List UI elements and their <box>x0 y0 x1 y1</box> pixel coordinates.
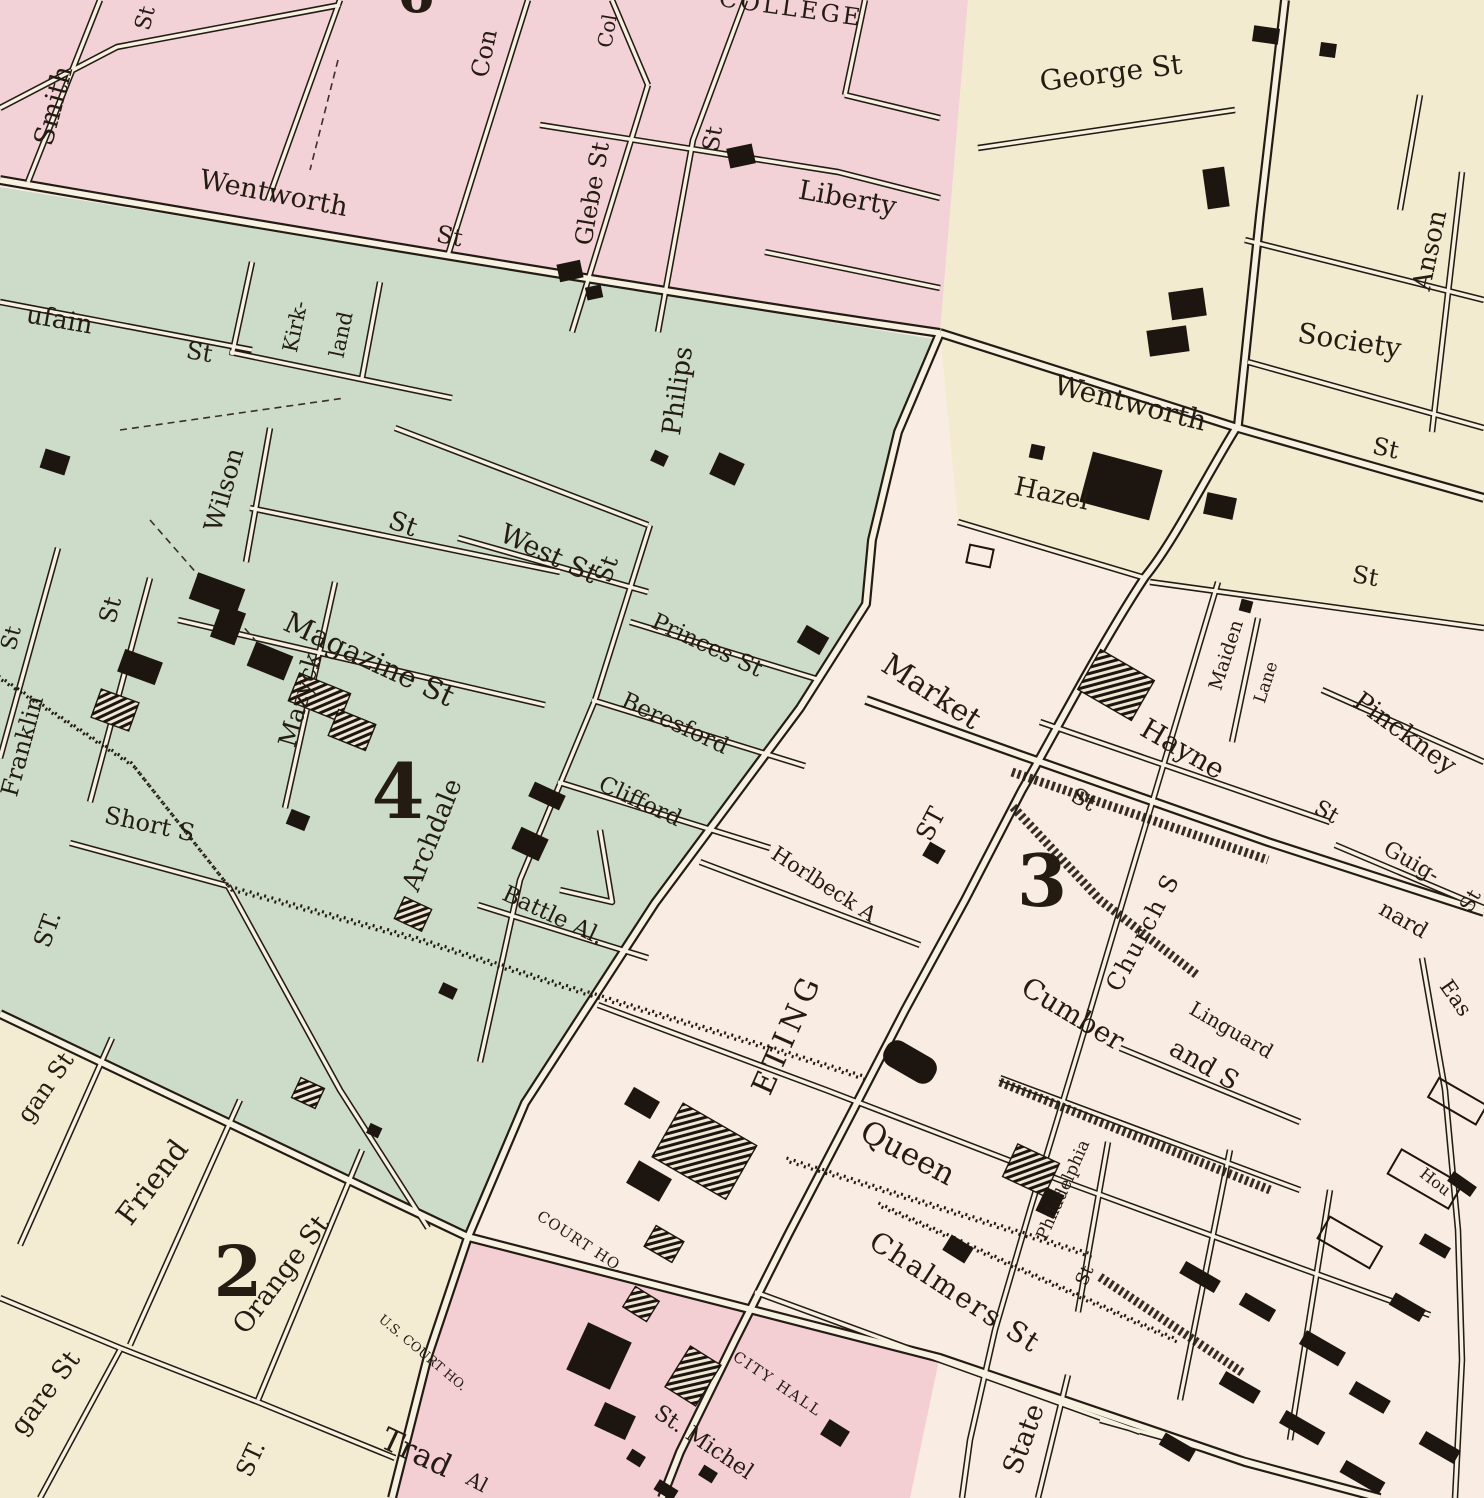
district-number-6: 6 <box>397 0 435 25</box>
building <box>1168 288 1207 321</box>
district-number-3: 3 <box>1017 838 1067 923</box>
historic-city-map[interactable]: St Smith Wentworth St Con Col COLLEGE Gl… <box>0 0 1484 1498</box>
street-label-beaufain-st: St <box>184 336 215 368</box>
street-label-hazel-st: St <box>1350 560 1381 592</box>
map-canvas: St Smith Wentworth St Con Col COLLEGE Gl… <box>0 0 1484 1498</box>
building <box>1029 444 1046 461</box>
building <box>1146 325 1189 356</box>
building <box>1319 42 1337 58</box>
district-1-cream-area <box>940 0 1484 628</box>
district-number-4: 4 <box>372 747 425 836</box>
